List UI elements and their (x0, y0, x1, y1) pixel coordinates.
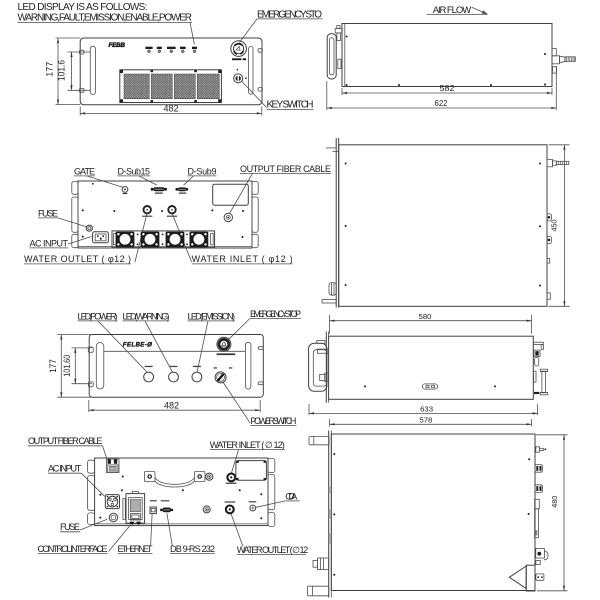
svg-text:OUTPUT FIBER CABLE: OUTPUT FIBER CABLE (240, 164, 331, 174)
svg-text:633: 633 (420, 405, 433, 414)
svg-text:CDA: CDA (285, 491, 298, 501)
svg-text:LED(WARNING): LED(WARNING) (123, 311, 170, 321)
svg-text:482: 482 (163, 104, 178, 114)
svg-text:WATER OUTLET ( ∅ 12: WATER OUTLET ( ∅ 12 (237, 545, 309, 555)
svg-text:D-Sub9: D-Sub9 (188, 166, 217, 176)
svg-text:DB 9-RS 232: DB 9-RS 232 (170, 544, 215, 554)
svg-text:FUSE: FUSE (38, 208, 58, 218)
svg-text:LED(POWER): LED(POWER) (78, 311, 118, 321)
svg-text:580: 580 (419, 312, 432, 321)
svg-text:WATER INLET ( ∅ 12): WATER INLET ( ∅ 12) (210, 440, 285, 450)
svg-text:482: 482 (164, 400, 179, 410)
svg-text:101.60: 101.60 (62, 355, 72, 377)
svg-text:GATE: GATE (74, 166, 95, 176)
svg-text:101.6: 101.6 (57, 60, 68, 81)
svg-text:OUTPUT FIBER CABLE: OUTPUT FIBER CABLE (28, 436, 103, 446)
svg-text:AC INPUT: AC INPUT (30, 238, 69, 248)
svg-text:LED DISPLAY IS AS FOLLOWS:: LED DISPLAY IS AS FOLLOWS: (18, 2, 148, 13)
svg-text:WATER INLET ( φ12 ): WATER INLET ( φ12 ) (192, 254, 293, 264)
svg-text:582: 582 (440, 83, 455, 93)
svg-text:POWER SWITCH: POWER SWITCH (250, 416, 296, 426)
svg-text:AC INPUT: AC INPUT (48, 464, 82, 474)
svg-text:450: 450 (550, 220, 559, 232)
svg-text:480: 480 (550, 496, 559, 508)
svg-text:WATER OUTLET ( φ12 ): WATER OUTLET ( φ12 ) (24, 254, 131, 264)
svg-text:ETHERNET: ETHERNET (118, 544, 153, 554)
svg-text:EMERGENCY STOP: EMERGENCY STOP (250, 309, 301, 319)
svg-text:FUSE: FUSE (60, 522, 80, 532)
svg-text:FELBE-Ø: FELBE-Ø (123, 342, 153, 349)
svg-text:D-Sub15: D-Sub15 (118, 166, 151, 176)
svg-text:578: 578 (419, 415, 432, 424)
svg-text:CONTROL INTERFACE: CONTROL INTERFACE (38, 544, 108, 554)
svg-text:622: 622 (435, 99, 449, 108)
svg-text:177: 177 (48, 359, 58, 373)
svg-text:177: 177 (45, 62, 56, 77)
svg-text:FEBB: FEBB (109, 42, 126, 49)
svg-text:LED(EMISSION): LED(EMISSION) (188, 311, 236, 321)
